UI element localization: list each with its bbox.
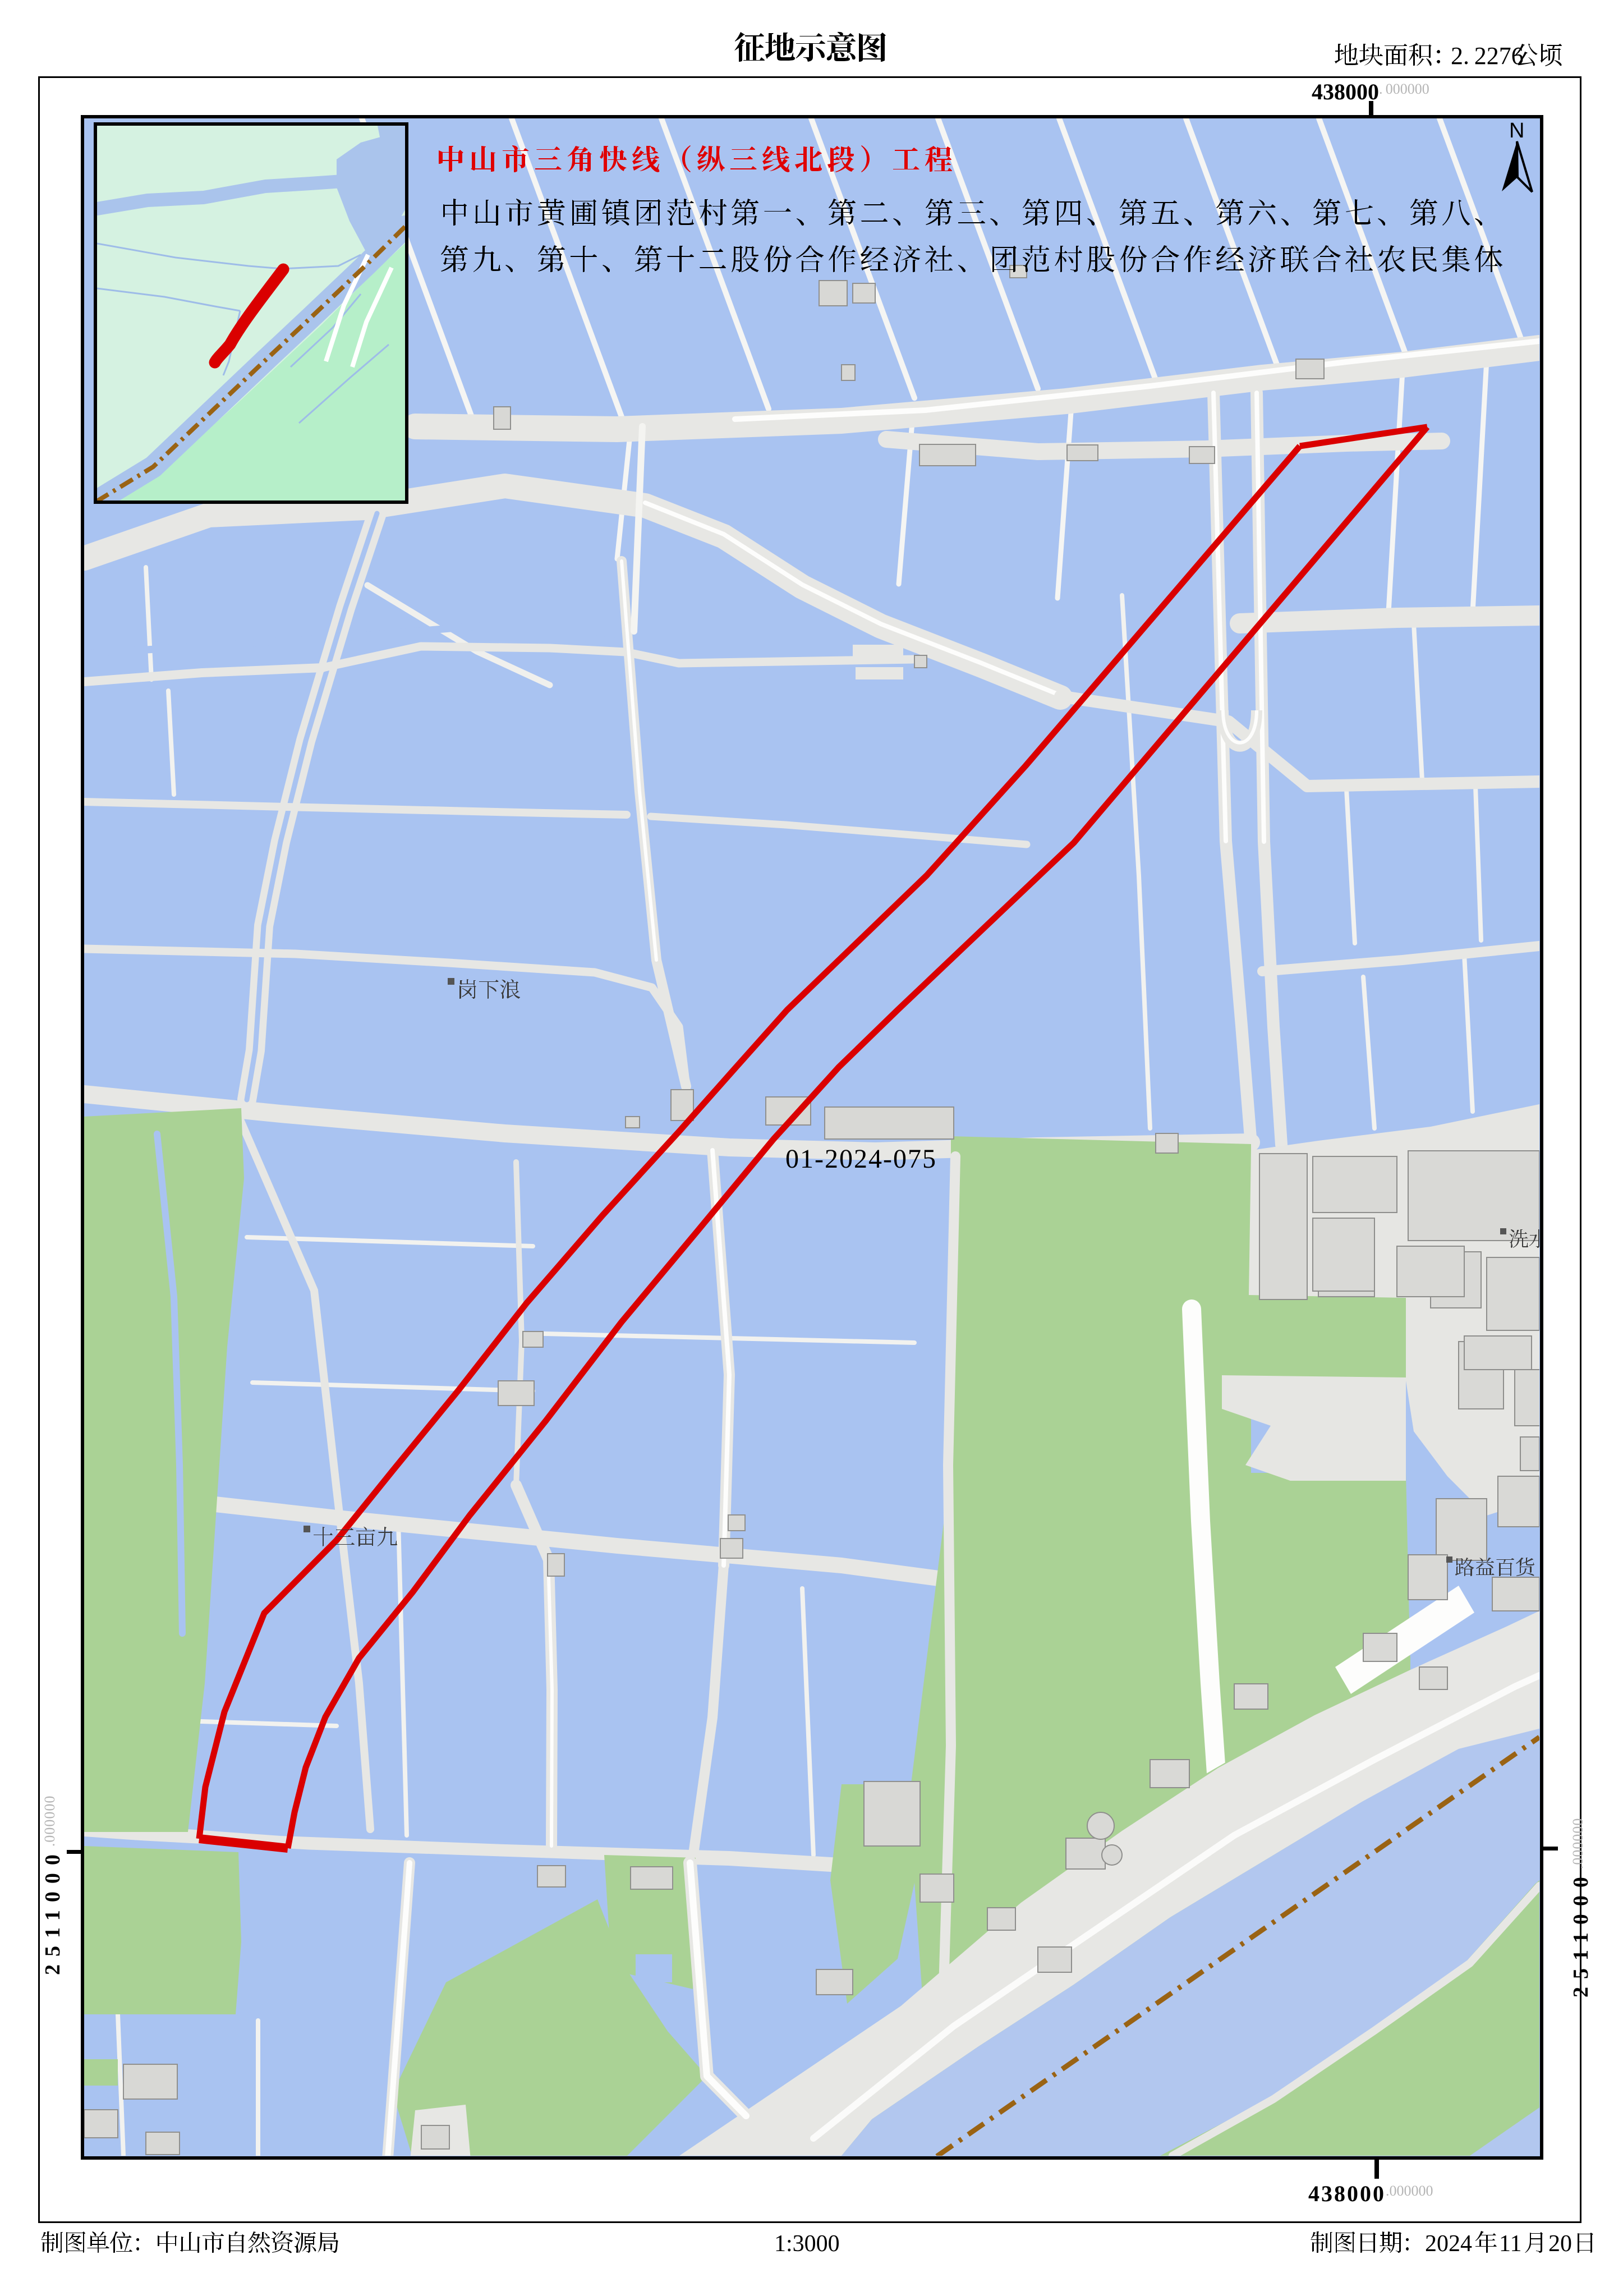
svg-text:2. 2276: 2. 2276	[1451, 42, 1524, 70]
svg-text:11: 11	[1499, 2231, 1521, 2257]
svg-text:20: 20	[1548, 2231, 1572, 2257]
svg-text:1:3000: 1:3000	[774, 2231, 840, 2257]
svg-text:01-2024-075: 01-2024-075	[785, 1144, 937, 1174]
svg-text:2024: 2024	[1425, 2231, 1472, 2257]
